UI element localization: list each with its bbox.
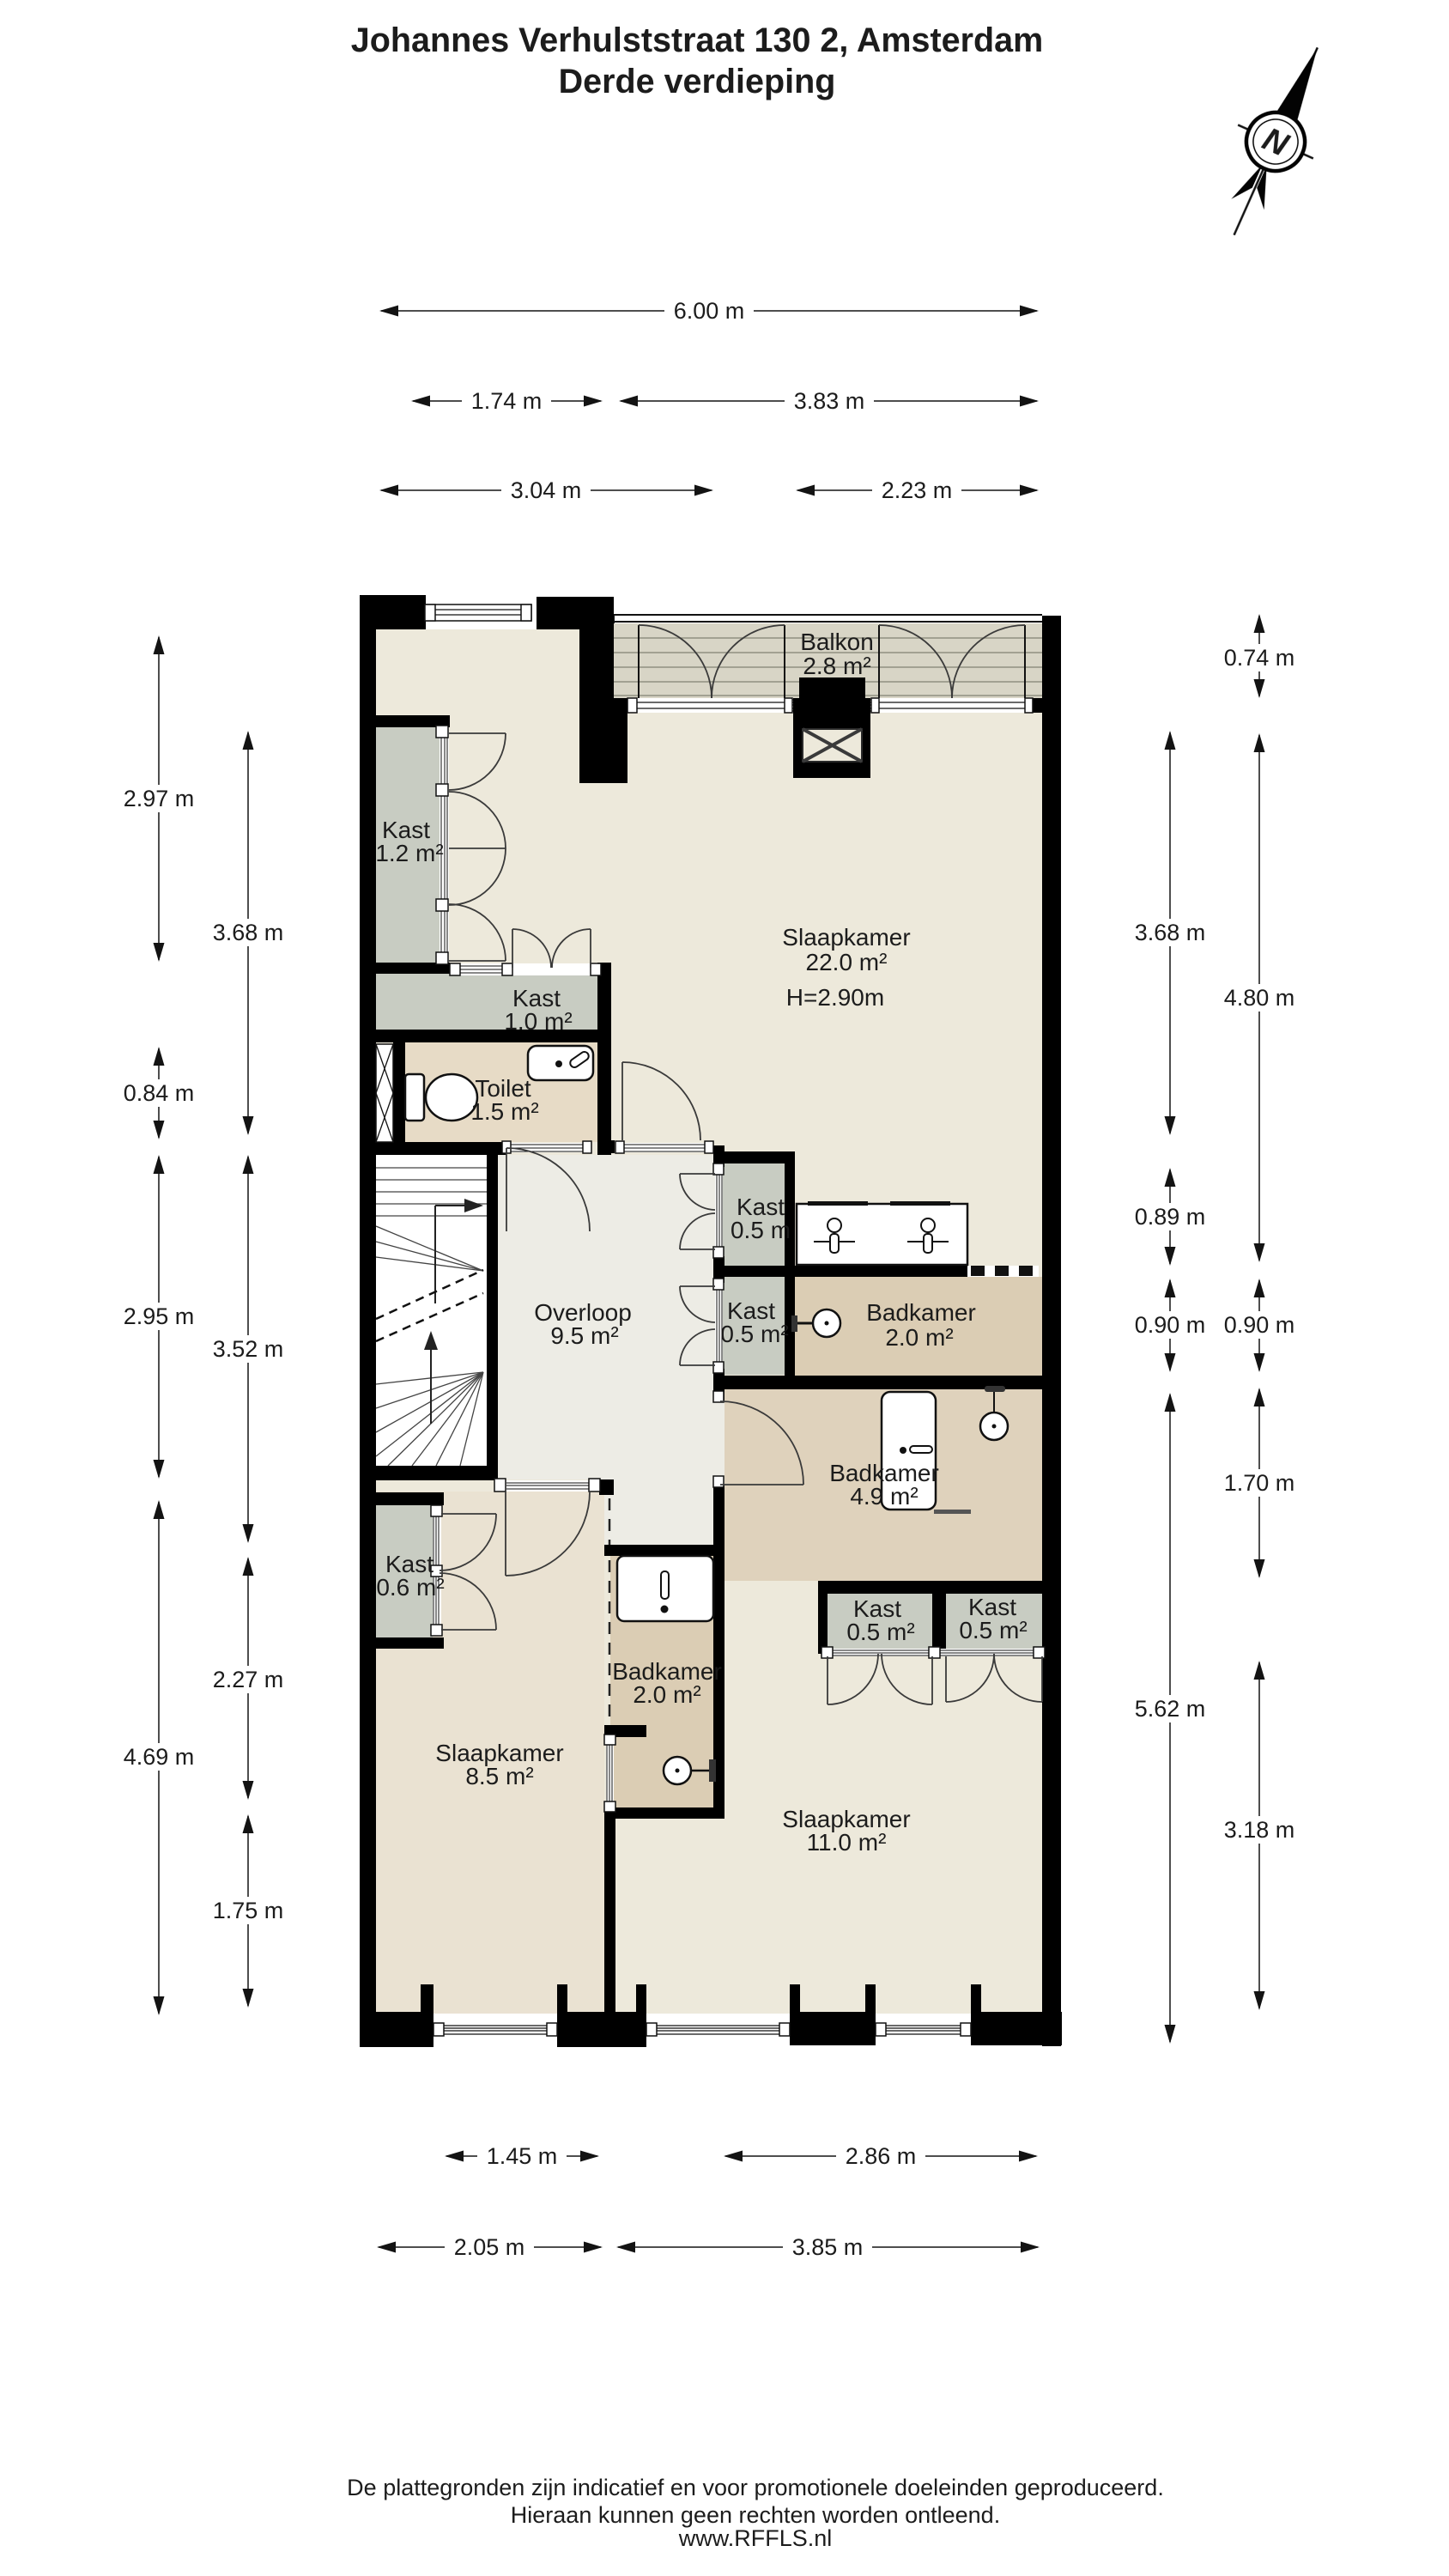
svg-text:0.5 m: 0.5 m xyxy=(731,1217,791,1243)
svg-text:www.RFFLS.nl: www.RFFLS.nl xyxy=(678,2525,833,2551)
svg-text:3.85 m: 3.85 m xyxy=(792,2234,864,2260)
svg-text:De plattegronden zijn indicati: De plattegronden zijn indicatief en voor… xyxy=(347,2475,1164,2500)
svg-text:1.5 m²: 1.5 m² xyxy=(470,1098,538,1125)
svg-text:Balkon: Balkon xyxy=(800,629,874,655)
svg-text:H=2.90m: H=2.90m xyxy=(786,984,884,1011)
svg-text:2.05 m: 2.05 m xyxy=(454,2234,525,2260)
svg-text:0.5 m²: 0.5 m² xyxy=(846,1619,914,1645)
svg-text:2.86 m: 2.86 m xyxy=(846,2143,917,2169)
svg-text:3.18 m: 3.18 m xyxy=(1224,1817,1295,1843)
svg-text:0.84 m: 0.84 m xyxy=(124,1080,195,1106)
svg-text:2.0 m²: 2.0 m² xyxy=(633,1681,700,1708)
svg-text:3.68 m: 3.68 m xyxy=(213,920,284,945)
svg-text:22.0 m²: 22.0 m² xyxy=(806,949,888,975)
svg-text:3.68 m: 3.68 m xyxy=(1135,920,1206,945)
svg-text:2.8 m²: 2.8 m² xyxy=(803,653,870,679)
svg-text:1.2 m²: 1.2 m² xyxy=(375,840,443,866)
svg-text:8.5 m²: 8.5 m² xyxy=(465,1763,533,1789)
svg-text:2.95 m: 2.95 m xyxy=(124,1303,195,1329)
svg-text:0.90 m: 0.90 m xyxy=(1224,1312,1295,1338)
svg-text:1.75 m: 1.75 m xyxy=(213,1898,284,1923)
svg-text:Johannes Verhulststraat 130 2,: Johannes Verhulststraat 130 2, Amsterdam xyxy=(351,21,1043,59)
svg-text:0.89 m: 0.89 m xyxy=(1135,1204,1206,1230)
svg-text:1.74 m: 1.74 m xyxy=(471,388,543,414)
svg-text:3.52 m: 3.52 m xyxy=(213,1336,284,1362)
svg-text:1.70 m: 1.70 m xyxy=(1224,1470,1295,1496)
svg-text:9.5 m²: 9.5 m² xyxy=(550,1322,618,1349)
svg-text:Badkamer: Badkamer xyxy=(866,1299,976,1326)
svg-text:5.62 m: 5.62 m xyxy=(1135,1696,1206,1722)
svg-text:4.69 m: 4.69 m xyxy=(124,1744,195,1770)
svg-text:2.23 m: 2.23 m xyxy=(882,477,953,503)
svg-text:1.0 m²: 1.0 m² xyxy=(504,1008,572,1035)
svg-text:Slaapkamer: Slaapkamer xyxy=(782,924,910,951)
svg-text:11.0 m²: 11.0 m² xyxy=(807,1829,887,1856)
svg-text:Hieraan kunnen geen rechten wo: Hieraan kunnen geen rechten worden ontle… xyxy=(511,2502,1000,2528)
svg-text:1.45 m: 1.45 m xyxy=(487,2143,558,2169)
svg-text:6.00 m: 6.00 m xyxy=(674,298,745,324)
svg-text:0.5 m²: 0.5 m² xyxy=(720,1321,788,1347)
svg-text:2.0 m²: 2.0 m² xyxy=(885,1324,953,1351)
svg-text:Derde verdieping: Derde verdieping xyxy=(559,63,836,100)
svg-text:0.74 m: 0.74 m xyxy=(1224,645,1295,671)
svg-text:0.5 m²: 0.5 m² xyxy=(959,1617,1027,1643)
svg-text:4.80 m: 4.80 m xyxy=(1224,985,1295,1011)
svg-text:0.6 m²: 0.6 m² xyxy=(376,1574,444,1601)
svg-text:2.97 m: 2.97 m xyxy=(124,786,195,811)
svg-text:3.83 m: 3.83 m xyxy=(794,388,865,414)
svg-text:4.9 m²: 4.9 m² xyxy=(850,1483,918,1510)
svg-text:0.90 m: 0.90 m xyxy=(1135,1312,1206,1338)
svg-text:3.04 m: 3.04 m xyxy=(511,477,582,503)
svg-text:2.27 m: 2.27 m xyxy=(213,1667,284,1692)
